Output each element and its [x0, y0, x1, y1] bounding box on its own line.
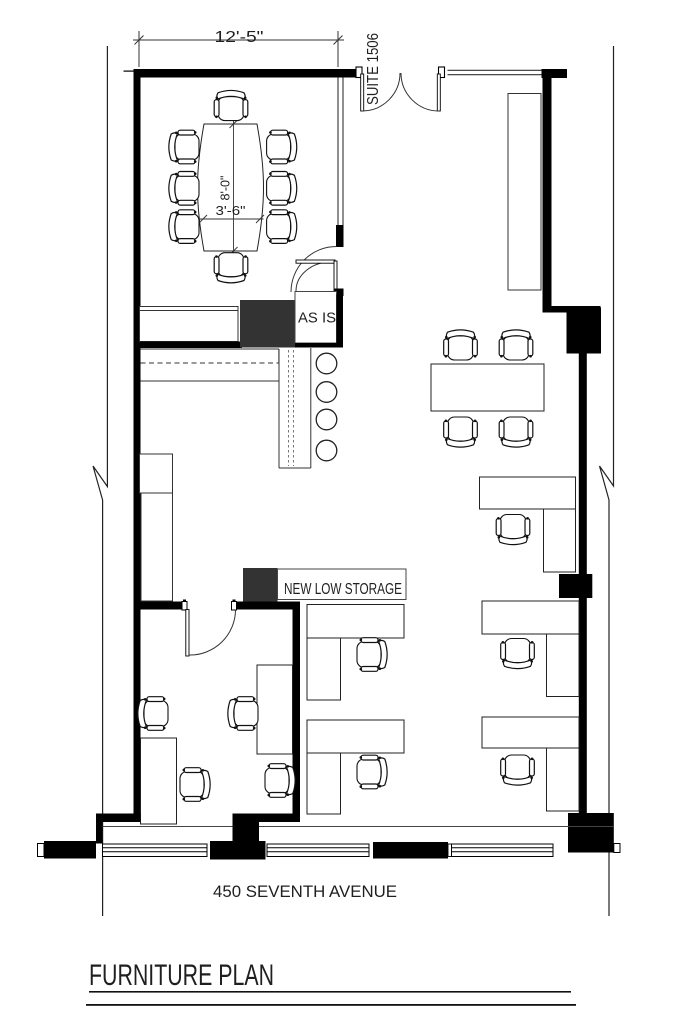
svg-text:NEW LOW STORAGE: NEW LOW STORAGE — [284, 581, 402, 598]
svg-text:12'-5": 12'-5" — [215, 29, 264, 46]
svg-text:3'-6": 3'-6" — [216, 203, 246, 218]
svg-text:450 SEVENTH AVENUE: 450 SEVENTH AVENUE — [213, 883, 397, 901]
svg-text:8'-0": 8'-0" — [218, 175, 233, 200]
svg-text:SUITE 1506: SUITE 1506 — [365, 33, 382, 105]
svg-text:AS IS: AS IS — [298, 310, 336, 327]
svg-text:FURNITURE PLAN: FURNITURE PLAN — [89, 959, 274, 992]
